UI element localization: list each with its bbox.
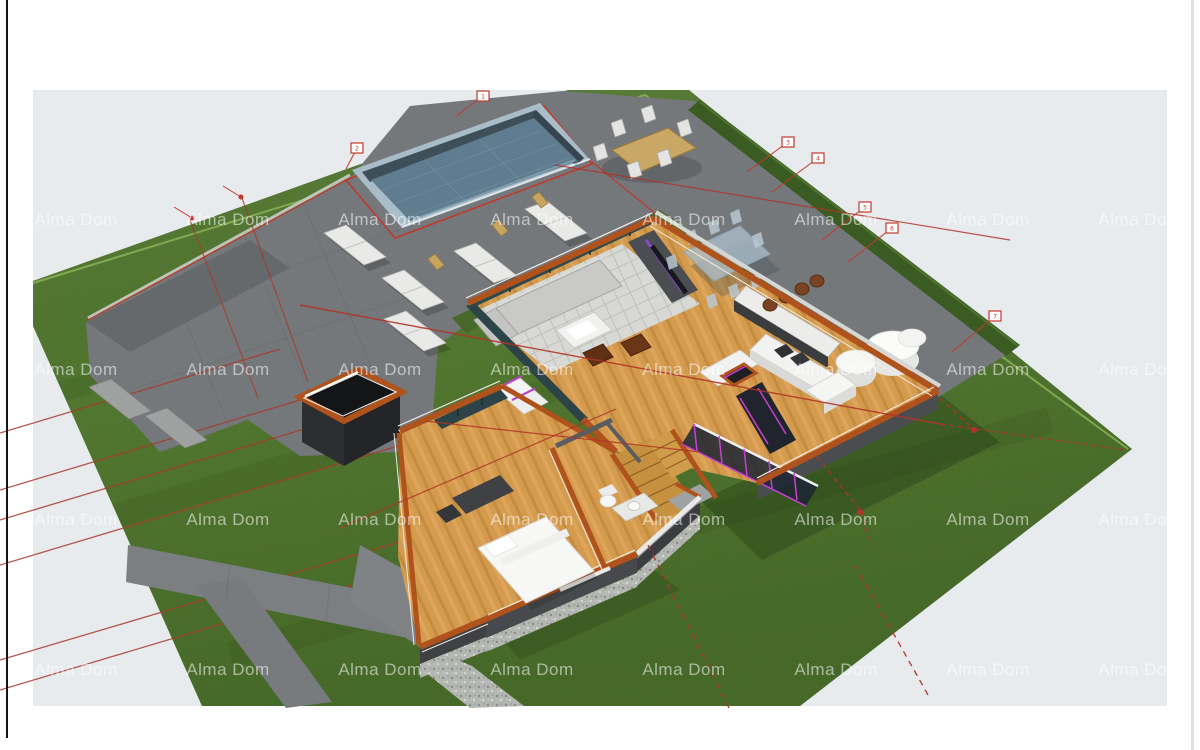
watermark-text: Alma Dom (794, 360, 877, 379)
watermark-text: Alma Dom (642, 510, 725, 529)
watermark-text: Alma Dom (490, 660, 573, 679)
floor-plan-page: 1234567 Alma DomAlma DomAlma DomAlma Dom… (0, 0, 1200, 750)
watermark-text: Alma Dom (34, 660, 117, 679)
watermark-text: Alma Dom (490, 510, 573, 529)
watermark-text: Alma Dom (1098, 360, 1181, 379)
watermark-text: Alma Dom (338, 660, 421, 679)
leader-dot (239, 195, 244, 200)
section-marker-label: 6 (890, 226, 894, 233)
water-tank-small (898, 329, 926, 347)
watermark-text: Alma Dom (338, 510, 421, 529)
bar-stool (795, 283, 809, 295)
watermark-text: Alma Dom (642, 210, 725, 229)
watermark-text: Alma Dom (490, 210, 573, 229)
watermark-text: Alma Dom (946, 660, 1029, 679)
watermark-text: Alma Dom (794, 210, 877, 229)
watermark-text: Alma Dom (946, 360, 1029, 379)
watermark-text: Alma Dom (642, 660, 725, 679)
bar-stool (810, 275, 824, 287)
section-marker-label: 3 (786, 140, 790, 147)
floor-plan-3d-render: 1234567 Alma DomAlma DomAlma DomAlma Dom… (0, 0, 1200, 750)
watermark-text: Alma Dom (1098, 510, 1181, 529)
watermark-text: Alma Dom (946, 210, 1029, 229)
watermark-text: Alma Dom (34, 210, 117, 229)
survey-knot (971, 427, 977, 433)
watermark-text: Alma Dom (490, 360, 573, 379)
section-marker-label: 7 (993, 314, 997, 321)
watermark-text: Alma Dom (1098, 660, 1181, 679)
watermark-text: Alma Dom (338, 210, 421, 229)
watermark-text: Alma Dom (642, 360, 725, 379)
section-marker-label: 1 (481, 94, 485, 101)
photo-left-border (6, 0, 8, 738)
section-marker-label: 2 (355, 146, 359, 153)
watermark-text: Alma Dom (186, 360, 269, 379)
watermark-text: Alma Dom (1098, 210, 1181, 229)
sink-basin (628, 502, 640, 511)
watermark-text: Alma Dom (34, 360, 117, 379)
watermark-text: Alma Dom (186, 510, 269, 529)
watermark-text: Alma Dom (794, 660, 877, 679)
watermark-text: Alma Dom (338, 360, 421, 379)
scan-artifact-line (1191, 0, 1194, 750)
watermark-text: Alma Dom (186, 210, 269, 229)
watermark-text: Alma Dom (34, 510, 117, 529)
watermark-text: Alma Dom (186, 660, 269, 679)
watermark-text: Alma Dom (794, 510, 877, 529)
section-marker-label: 4 (816, 156, 820, 163)
watermark-text: Alma Dom (946, 510, 1029, 529)
toilet (600, 495, 616, 507)
